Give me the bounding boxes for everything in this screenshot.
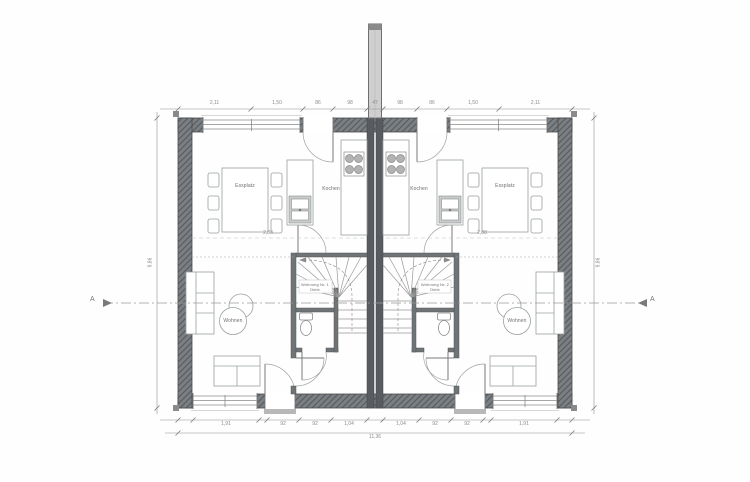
living-window [191,393,259,411]
dim-bottom-4: 1,04 [387,422,415,427]
dim-top-6: 86 [422,101,442,106]
floorplan-sheet: Essplatz Kochen Wohnen Wohnung Nr. 1 Die… [0,0,750,482]
room-label-dining-right: Essplatz [482,183,528,189]
living-furniture [186,272,260,386]
corner-post [173,111,179,117]
chair [208,173,219,187]
hall-label-right-line2: Diele [418,287,452,292]
stair-walkline [306,260,352,331]
room-label-kitchen-right: Kochen [404,186,434,192]
stair-walkline-arrow [299,258,306,263]
room-label-living-left: Wohnen [219,318,247,324]
dim-bottom-6: 92 [457,422,477,427]
dim-right-total: 9,86 [597,249,602,277]
unit-interior [173,111,367,414]
chair [208,219,219,233]
dim-bottom-total: 11,36 [361,435,389,440]
dim-bottom-5: 92 [425,422,445,427]
section-letter-right: A [650,296,655,303]
dim-top-3: 98 [340,101,360,106]
dim-bottom-3: 1,04 [335,422,363,427]
dining-set [208,168,282,233]
dim-bottom-2: 92 [305,422,325,427]
room-label-kitchen-left: Kochen [316,186,346,192]
dim-top-4: 47 [366,101,384,106]
hall-label-left: Wohnung Nr. 1 Diele [298,282,332,292]
dim-interior-right: 2,88 [468,231,496,236]
chair [271,196,282,210]
hall-label-left-line2: Diele [298,287,332,292]
kitchen-hall-door [298,225,326,253]
dim-interior-left: 2,88 [254,231,282,236]
hall-label-right-line1: Wohnung Nr. 2 [418,282,452,287]
section-arrow-right [638,299,647,307]
hall-label-right: Wohnung Nr. 2 Diele [418,282,452,292]
room-label-dining-left: Essplatz [222,183,268,189]
top-window [201,116,302,134]
hall-label-left-line1: Wohnung Nr. 1 [298,282,332,287]
room-label-living-right: Wohnen [503,318,531,324]
dim-bottom-1: 92 [273,422,293,427]
floorplan-drawing [0,0,750,482]
dim-top-1: 1,50 [263,101,291,106]
kitchen-island [287,160,313,225]
chair [208,196,219,210]
faucet [299,209,301,211]
toilet [300,313,313,336]
unit-interior-mirrored [383,111,577,414]
chair [271,173,282,187]
dim-top-5: 98 [390,101,410,106]
dim-left-total: 9,86 [149,249,154,277]
party-wall [367,118,383,408]
corner-post [173,405,179,411]
entry-threshold [264,409,296,414]
dim-top-8: 2,11 [521,101,550,106]
section-letter-left: A [90,296,95,303]
dining-table [222,168,268,232]
dim-top-7: 1,50 [459,101,487,106]
dim-top-2: 86 [308,101,328,106]
dim-bottom-7: 1,91 [510,422,538,427]
dim-bottom-0: 1,91 [212,422,240,427]
dim-top-0: 2,11 [200,101,229,106]
section-arrow-left [103,299,112,307]
cooktop [344,152,364,176]
terrace-door [303,117,333,162]
